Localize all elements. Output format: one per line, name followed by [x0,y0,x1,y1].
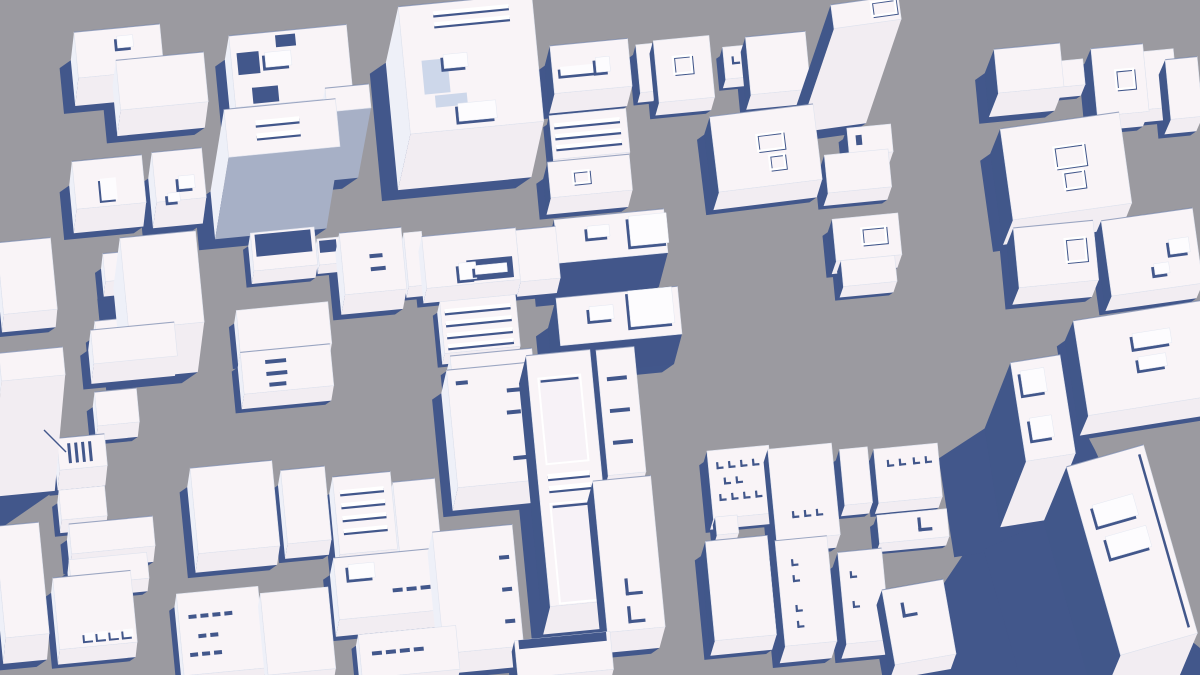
building-13 [113,52,209,136]
3d-city-viewport [0,0,1200,675]
building-14 [1159,57,1200,135]
building-28 [248,227,318,284]
city-block-render [0,0,1200,675]
building-21 [543,154,632,215]
building-44 [88,322,177,384]
building-23 [69,155,146,233]
building-47 [1065,300,1200,435]
building-49 [55,434,108,490]
building-19 [820,149,892,206]
building-60 [764,443,841,554]
building-24 [211,99,341,240]
building-48 [93,388,140,441]
building-56 [704,445,776,530]
building-53 [870,443,943,514]
building-35 [1007,220,1099,304]
building-22 [148,148,206,229]
building-61 [278,466,331,559]
building-34 [418,228,520,304]
building-72 [51,570,137,664]
building-30 [837,256,897,298]
building-73 [770,536,837,663]
building-6 [545,38,632,113]
building-37 [335,227,407,315]
building-78 [258,587,336,675]
building-51 [0,347,65,497]
building-54 [836,447,873,516]
building-20 [704,104,822,210]
building-45 [238,344,334,409]
building-38 [0,238,57,333]
building-70 [701,535,777,655]
building-64 [187,460,280,572]
building-29 [545,209,669,297]
building-36 [1095,208,1200,311]
building-18 [386,0,544,190]
building-31 [512,226,560,297]
building-8 [985,43,1064,117]
building-77 [174,586,265,675]
building-59 [874,509,950,553]
building-76 [877,579,957,675]
building-7 [650,36,715,116]
